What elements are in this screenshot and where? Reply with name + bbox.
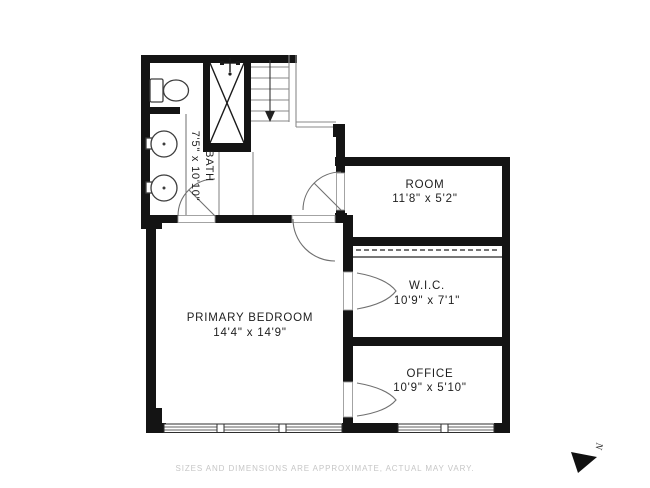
window-mullion xyxy=(279,424,286,433)
room-label-wic: W.I.C. 10'9" x 7'1" xyxy=(394,280,460,307)
north-arrow-icon: N xyxy=(571,441,605,473)
floorplan-page: { "plan": { "rooms": { "bath": {"name": … xyxy=(0,0,650,488)
sink-icon xyxy=(146,175,177,201)
disclaimer-text: SIZES AND DIMENSIONS ARE APPROXIMATE, AC… xyxy=(175,464,474,473)
floorplan-canvas: BATH 7'5" x 10'10" ROOM 11'8" x 5'2" W.I… xyxy=(0,0,650,488)
wall-layer xyxy=(141,55,510,433)
room-name: ROOM xyxy=(406,179,445,191)
window-mullion xyxy=(217,424,224,433)
office-name: OFFICE xyxy=(407,368,454,380)
primary-bedroom-name: PRIMARY BEDROOM xyxy=(187,312,314,324)
office-door xyxy=(344,382,397,417)
office-windows xyxy=(398,424,494,433)
stairs-direction-arrow xyxy=(265,111,275,122)
stairs-down-icon xyxy=(251,55,336,127)
wic-door xyxy=(344,272,397,310)
room-label-room: ROOM 11'8" x 5'2" xyxy=(392,179,457,205)
sink-icon xyxy=(146,131,177,157)
room-door xyxy=(303,172,345,210)
room-label-office: OFFICE 10'9" x 5'10" xyxy=(393,368,466,394)
bath-name: BATH xyxy=(203,150,215,182)
bedroom-windows xyxy=(164,424,342,433)
wic-dims: 10'9" x 7'1" xyxy=(394,295,460,307)
wic-name: W.I.C. xyxy=(409,280,445,292)
primary-bedroom-dims: 14'4" x 14'9" xyxy=(213,327,286,339)
room-dims: 11'8" x 5'2" xyxy=(392,193,457,205)
closet-rod-strip xyxy=(353,250,502,257)
toilet-icon xyxy=(150,79,189,102)
office-dims: 10'9" x 5'10" xyxy=(393,382,466,394)
room-label-primary-bedroom: PRIMARY BEDROOM 14'4" x 14'9" xyxy=(187,312,314,339)
bedroom-door xyxy=(292,216,335,262)
window-mullion xyxy=(441,424,448,433)
north-arrow-label: N xyxy=(592,441,604,452)
shower-icon xyxy=(210,58,244,143)
bath-dims: 7'5" x 10'10" xyxy=(189,131,201,202)
